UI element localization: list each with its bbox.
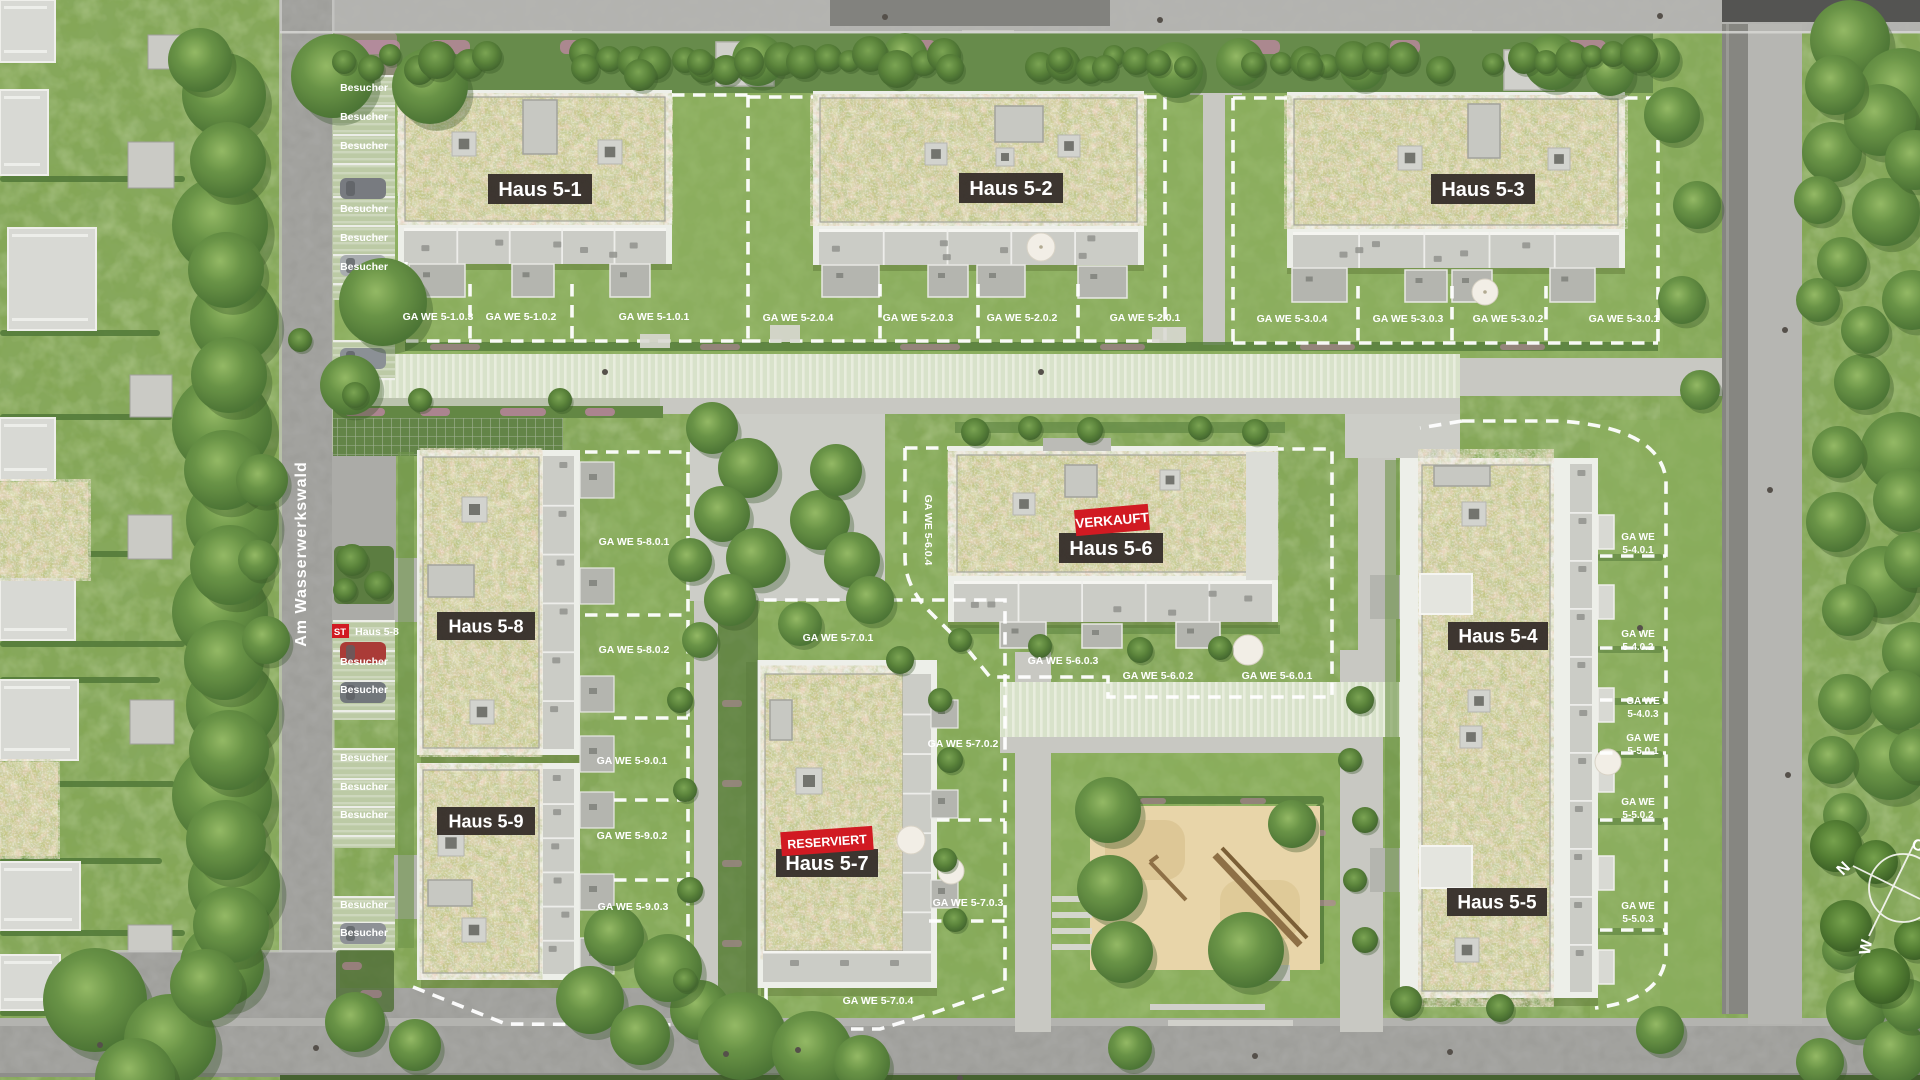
svg-text:Haus 5-4: Haus 5-4	[1458, 627, 1538, 648]
svg-text:GA WE 5-1.0.1: GA WE 5-1.0.1	[619, 311, 690, 323]
svg-text:5-4.0.3: 5-4.0.3	[1627, 709, 1659, 720]
svg-text:GA WE 5-6.0.2: GA WE 5-6.0.2	[1123, 670, 1194, 682]
svg-text:GA WE 5-3.0.4: GA WE 5-3.0.4	[1257, 313, 1328, 325]
svg-text:Besucher: Besucher	[340, 232, 388, 244]
svg-text:Besucher: Besucher	[340, 809, 388, 821]
svg-text:Haus 5-8: Haus 5-8	[355, 626, 399, 638]
svg-text:Besucher: Besucher	[340, 82, 388, 94]
svg-text:Haus 5-7: Haus 5-7	[785, 853, 868, 875]
svg-text:5-5.0.2: 5-5.0.2	[1622, 810, 1654, 821]
svg-text:GA WE 5-6.0.4: GA WE 5-6.0.4	[922, 495, 934, 566]
svg-text:GA WE 5-7.0.3: GA WE 5-7.0.3	[933, 897, 1004, 909]
svg-text:Haus 5-2: Haus 5-2	[969, 178, 1052, 200]
svg-text:Haus 5-9: Haus 5-9	[448, 811, 523, 831]
svg-text:GA WE 5-1.0.2: GA WE 5-1.0.2	[486, 311, 557, 323]
svg-text:GA WE: GA WE	[1621, 901, 1655, 912]
svg-text:Besucher: Besucher	[340, 140, 388, 152]
svg-text:Besucher: Besucher	[340, 203, 388, 215]
svg-text:GA WE: GA WE	[1626, 733, 1660, 744]
svg-text:5-4.0.2: 5-4.0.2	[1622, 642, 1654, 653]
svg-text:ST: ST	[334, 627, 346, 638]
svg-text:GA WE 5-2.0.2: GA WE 5-2.0.2	[987, 312, 1058, 324]
svg-text:GA WE 5-7.0.1: GA WE 5-7.0.1	[803, 632, 874, 644]
svg-text:Haus 5-5: Haus 5-5	[1457, 893, 1537, 914]
svg-text:GA WE 5-2.0.1: GA WE 5-2.0.1	[1110, 312, 1181, 324]
svg-text:Haus 5-1: Haus 5-1	[498, 179, 581, 201]
svg-text:Besucher: Besucher	[340, 656, 388, 668]
svg-text:GA WE: GA WE	[1621, 797, 1655, 808]
svg-text:Besucher: Besucher	[340, 781, 388, 793]
svg-text:Besucher: Besucher	[340, 684, 388, 696]
svg-text:GA WE 5-6.0.1: GA WE 5-6.0.1	[1242, 670, 1313, 682]
svg-text:GA WE 5-6.0.3: GA WE 5-6.0.3	[1028, 655, 1099, 667]
svg-text:GA WE 5-9.0.3: GA WE 5-9.0.3	[598, 901, 669, 913]
svg-text:GA WE 5-3.0.3: GA WE 5-3.0.3	[1373, 313, 1444, 325]
svg-text:GA WE 5-7.0.4: GA WE 5-7.0.4	[843, 995, 914, 1007]
svg-text:GA WE 5-2.0.4: GA WE 5-2.0.4	[763, 312, 834, 324]
svg-text:5-4.0.1: 5-4.0.1	[1622, 545, 1654, 556]
svg-text:GA WE 5-7.0.2: GA WE 5-7.0.2	[928, 738, 999, 750]
svg-text:GA WE: GA WE	[1621, 532, 1655, 543]
svg-text:Besucher: Besucher	[340, 261, 388, 273]
svg-text:GA WE 5-8.0.1: GA WE 5-8.0.1	[599, 536, 670, 548]
svg-text:Haus 5-3: Haus 5-3	[1441, 179, 1524, 201]
svg-text:Haus 5-6: Haus 5-6	[1069, 538, 1152, 560]
svg-text:GA WE 5-3.0.1: GA WE 5-3.0.1	[1589, 313, 1660, 325]
svg-text:5-5.0.1: 5-5.0.1	[1627, 746, 1659, 757]
svg-text:GA WE: GA WE	[1626, 696, 1660, 707]
svg-text:Besucher: Besucher	[340, 111, 388, 123]
svg-text:Am Wasserwerkswald: Am Wasserwerkswald	[293, 461, 310, 646]
svg-text:5-5.0.3: 5-5.0.3	[1622, 914, 1654, 925]
svg-text:GA WE 5-1.0.3: GA WE 5-1.0.3	[403, 311, 474, 323]
svg-text:GA WE 5-9.0.2: GA WE 5-9.0.2	[597, 830, 668, 842]
svg-text:Besucher: Besucher	[340, 927, 388, 939]
svg-text:Besucher: Besucher	[340, 752, 388, 764]
svg-text:Haus 5-8: Haus 5-8	[448, 616, 523, 636]
svg-text:Besucher: Besucher	[340, 899, 388, 911]
svg-text:GA WE 5-8.0.2: GA WE 5-8.0.2	[599, 644, 670, 656]
svg-text:GA WE 5-2.0.3: GA WE 5-2.0.3	[883, 312, 954, 324]
svg-text:GA WE: GA WE	[1621, 629, 1655, 640]
svg-text:GA WE 5-3.0.2: GA WE 5-3.0.2	[1473, 313, 1544, 325]
svg-text:GA WE 5-9.0.1: GA WE 5-9.0.1	[597, 755, 668, 767]
